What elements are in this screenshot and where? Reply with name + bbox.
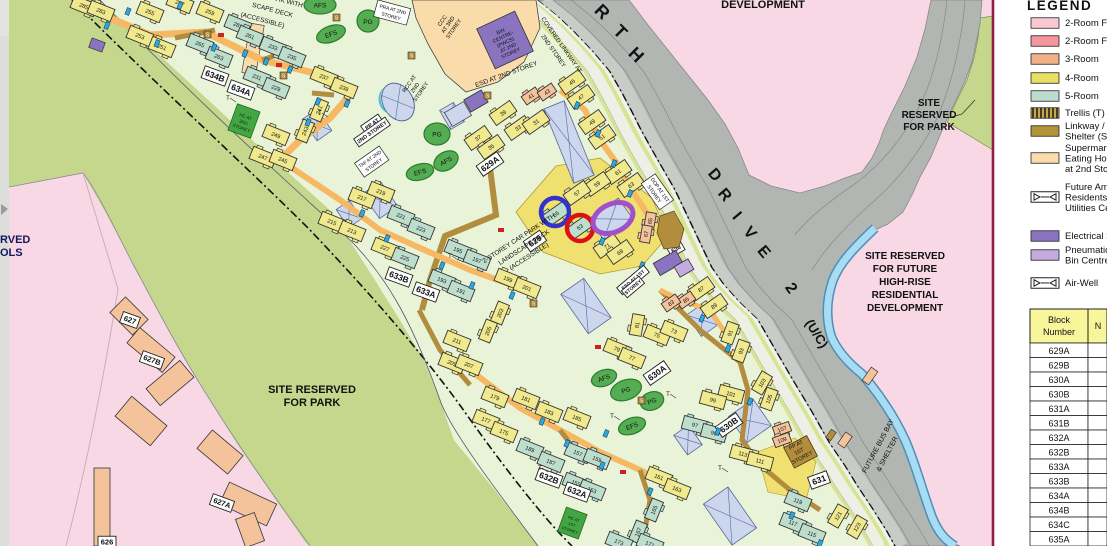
svg-text:SITE RESERVED: SITE RESERVED: [268, 384, 356, 396]
svg-text:Linkway / P: Linkway / P: [1065, 121, 1107, 132]
svg-text:Supermark: Supermark: [1065, 143, 1107, 154]
svg-text:81: 81: [635, 322, 642, 329]
svg-text:RESERVED: RESERVED: [902, 110, 957, 121]
svg-text:Utilities Ce: Utilities Ce: [1065, 203, 1107, 214]
svg-text:at 2nd Stor: at 2nd Stor: [1065, 164, 1107, 175]
svg-text:630B: 630B: [1048, 390, 1069, 400]
svg-text:629A: 629A: [1048, 346, 1069, 356]
svg-text:4-Room: 4-Room: [1065, 73, 1099, 84]
svg-text:DEVELOPMENT: DEVELOPMENT: [721, 0, 805, 11]
svg-text:FOR PARK: FOR PARK: [284, 397, 341, 409]
svg-text:632A: 632A: [1048, 433, 1069, 443]
svg-text:65: 65: [648, 218, 655, 225]
svg-text:Future Ame: Future Ame: [1065, 182, 1107, 193]
svg-text:2-Room Fle: 2-Room Fle: [1065, 36, 1107, 47]
svg-text:5-Room: 5-Room: [1065, 91, 1099, 102]
svg-text:PG: PG: [363, 19, 372, 26]
svg-text:Block: Block: [1048, 315, 1071, 325]
svg-text:RESIDENTIAL: RESIDENTIAL: [872, 290, 939, 301]
svg-text:2-Room Fle: 2-Room Fle: [1065, 18, 1107, 29]
svg-text:634C: 634C: [1048, 520, 1070, 530]
svg-text:632B: 632B: [1048, 448, 1069, 458]
svg-text:Pneumatic: Pneumatic: [1065, 245, 1107, 256]
svg-text:635A: 635A: [1048, 535, 1069, 545]
svg-text:67: 67: [644, 231, 651, 238]
svg-text:Electrical S: Electrical S: [1065, 231, 1107, 242]
svg-text:SITE RESERVED: SITE RESERVED: [865, 251, 945, 262]
svg-text:T: T: [226, 96, 230, 102]
svg-text:626: 626: [101, 538, 114, 546]
svg-text:634B: 634B: [1048, 506, 1069, 516]
svg-text:Bin Centre (: Bin Centre (: [1065, 256, 1107, 267]
svg-text:T: T: [538, 466, 542, 472]
svg-text:629B: 629B: [1048, 361, 1069, 371]
svg-text:Shelter (S): Shelter (S): [1065, 132, 1107, 143]
svg-text:AFS: AFS: [314, 2, 327, 9]
svg-text:631B: 631B: [1048, 419, 1069, 429]
svg-text:T: T: [318, 111, 322, 117]
svg-text:Eating Hou: Eating Hou: [1065, 154, 1107, 165]
svg-text:T: T: [718, 466, 722, 472]
svg-text:633A: 633A: [1048, 462, 1069, 472]
svg-text:HIGH-RISE: HIGH-RISE: [879, 277, 931, 288]
svg-text:630A: 630A: [1048, 375, 1069, 385]
svg-text:DEVELOPMENT: DEVELOPMENT: [867, 303, 943, 314]
svg-text:633B: 633B: [1048, 477, 1069, 487]
svg-text:FOR FUTURE: FOR FUTURE: [873, 264, 938, 275]
svg-text:634A: 634A: [1048, 491, 1069, 501]
svg-text:Number: Number: [1043, 327, 1075, 337]
svg-text:Residents': Residents': [1065, 193, 1107, 204]
svg-text:T: T: [610, 414, 614, 420]
svg-text:RVED: RVED: [0, 234, 30, 246]
svg-text:3-Room: 3-Room: [1065, 54, 1099, 65]
svg-text:PG: PG: [432, 131, 441, 138]
svg-text:OLS: OLS: [0, 247, 23, 259]
svg-text:SITE: SITE: [918, 98, 941, 109]
svg-text:Air-Well: Air-Well: [1065, 278, 1098, 289]
svg-text:631A: 631A: [1048, 404, 1069, 414]
svg-text:LEGEND: LEGEND: [1027, 0, 1092, 13]
svg-text:T: T: [448, 254, 452, 260]
svg-text:N: N: [1095, 321, 1102, 331]
svg-text:FOR PARK: FOR PARK: [903, 122, 955, 133]
svg-text:Trellis (T): Trellis (T): [1065, 108, 1105, 119]
svg-text:T: T: [666, 392, 670, 398]
